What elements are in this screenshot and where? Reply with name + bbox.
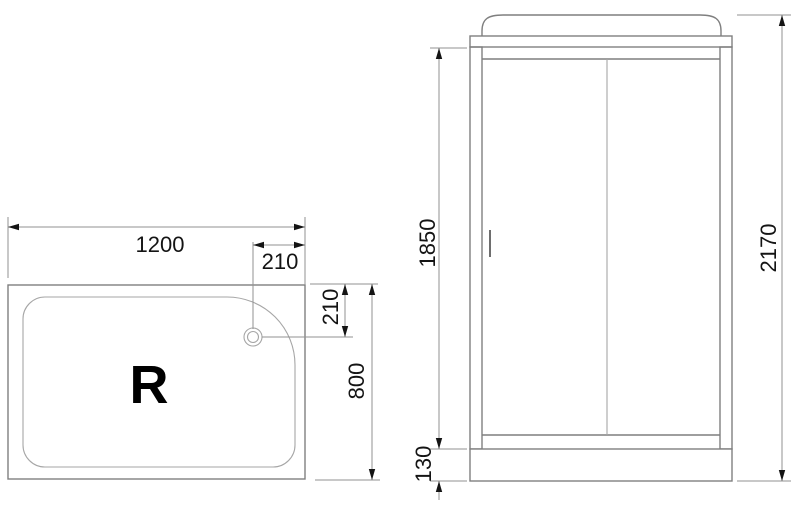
drain-offset-y-label: 210 (318, 289, 343, 326)
arrowhead-left (8, 224, 19, 230)
arrowhead-down (369, 469, 375, 480)
drain-offset-x-label: 210 (262, 249, 299, 274)
tray-width-label: 1200 (136, 232, 185, 257)
cabin-top-frame (470, 36, 732, 47)
arrowhead-up (779, 15, 785, 26)
arrowhead-left (253, 242, 264, 248)
tray-marking-label: R (130, 355, 169, 415)
cabin-base (470, 449, 732, 481)
arrowhead-right (294, 242, 305, 248)
arrowhead-down (436, 438, 442, 449)
base-height-label: 130 (411, 446, 436, 483)
total-height-label: 2170 (756, 224, 781, 273)
arrowhead-up (436, 48, 442, 59)
arrowhead-down (342, 326, 348, 337)
tray-depth-label: 800 (344, 363, 369, 400)
arrowhead-down (779, 470, 785, 481)
cabin-right-frame (720, 47, 732, 449)
arrowhead-up (369, 284, 375, 295)
arrowhead-right (294, 224, 305, 230)
technical-drawing: R 1200 210 210 800 (0, 0, 800, 508)
cabin-left-frame (470, 47, 482, 449)
tray-top-view: R 1200 210 210 800 (8, 217, 380, 480)
cabin-roof-dome (482, 15, 721, 36)
arrowhead-up (436, 481, 442, 492)
cabin-front-view: 1850 130 2170 (411, 15, 791, 500)
door-height-label: 1850 (415, 219, 440, 268)
technical-drawing-canvas: R 1200 210 210 800 (0, 0, 800, 508)
